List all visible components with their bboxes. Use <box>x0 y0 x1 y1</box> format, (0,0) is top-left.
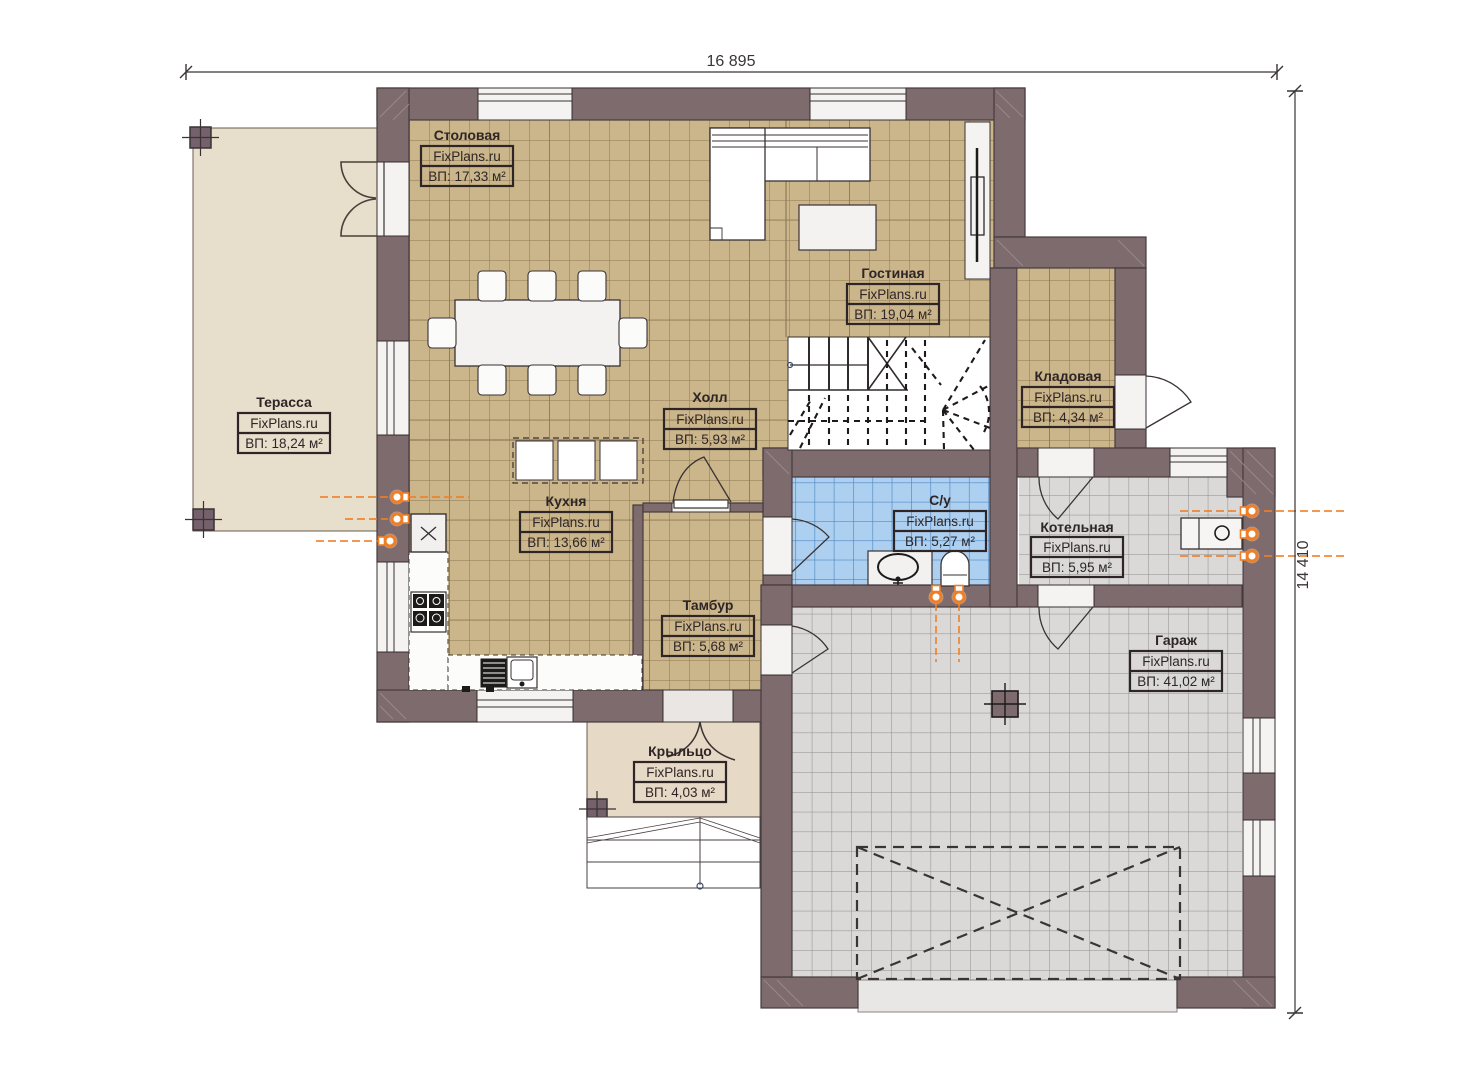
svg-text:FixPlans.ru: FixPlans.ru <box>859 287 927 302</box>
svg-text:FixPlans.ru: FixPlans.ru <box>1043 540 1111 555</box>
svg-text:Крыльцо: Крыльцо <box>648 743 712 759</box>
svg-text:FixPlans.ru: FixPlans.ru <box>906 514 974 529</box>
svg-text:FixPlans.ru: FixPlans.ru <box>433 149 501 164</box>
svg-text:С/у: С/у <box>929 492 951 508</box>
svg-text:ВП: 5,27 м²: ВП: 5,27 м² <box>905 534 976 549</box>
svg-text:Холл: Холл <box>692 389 727 405</box>
svg-text:FixPlans.ru: FixPlans.ru <box>646 765 714 780</box>
svg-text:FixPlans.ru: FixPlans.ru <box>674 619 742 634</box>
svg-text:ВП: 18,24 м²: ВП: 18,24 м² <box>245 436 323 451</box>
svg-text:Кладовая: Кладовая <box>1034 368 1101 384</box>
svg-text:ВП: 19,04 м²: ВП: 19,04 м² <box>854 307 932 322</box>
svg-text:Гараж: Гараж <box>1155 632 1198 648</box>
svg-text:FixPlans.ru: FixPlans.ru <box>250 416 318 431</box>
svg-text:Столовая: Столовая <box>434 127 501 143</box>
svg-text:ВП: 4,34 м²: ВП: 4,34 м² <box>1033 410 1104 425</box>
svg-text:Котельная: Котельная <box>1040 519 1113 535</box>
svg-text:FixPlans.ru: FixPlans.ru <box>1142 654 1210 669</box>
svg-text:FixPlans.ru: FixPlans.ru <box>532 515 600 530</box>
svg-text:14 410: 14 410 <box>1295 540 1312 589</box>
svg-text:FixPlans.ru: FixPlans.ru <box>676 412 744 427</box>
svg-text:ВП: 5,93 м²: ВП: 5,93 м² <box>675 432 746 447</box>
svg-text:Кухня: Кухня <box>546 493 587 509</box>
svg-text:ВП: 5,68 м²: ВП: 5,68 м² <box>673 639 744 654</box>
svg-text:ВП: 5,95 м²: ВП: 5,95 м² <box>1042 560 1113 575</box>
svg-text:ВП: 13,66 м²: ВП: 13,66 м² <box>527 535 605 550</box>
svg-text:FixPlans.ru: FixPlans.ru <box>1034 390 1102 405</box>
svg-text:ВП: 17,33 м²: ВП: 17,33 м² <box>428 169 506 184</box>
svg-text:ВП: 4,03 м²: ВП: 4,03 м² <box>645 785 716 800</box>
svg-text:ВП: 41,02 м²: ВП: 41,02 м² <box>1137 674 1215 689</box>
svg-text:Терасса: Терасса <box>256 394 312 410</box>
svg-text:16 895: 16 895 <box>707 53 756 70</box>
svg-text:Тамбур: Тамбур <box>683 597 734 613</box>
svg-text:Гостиная: Гостиная <box>861 265 924 281</box>
